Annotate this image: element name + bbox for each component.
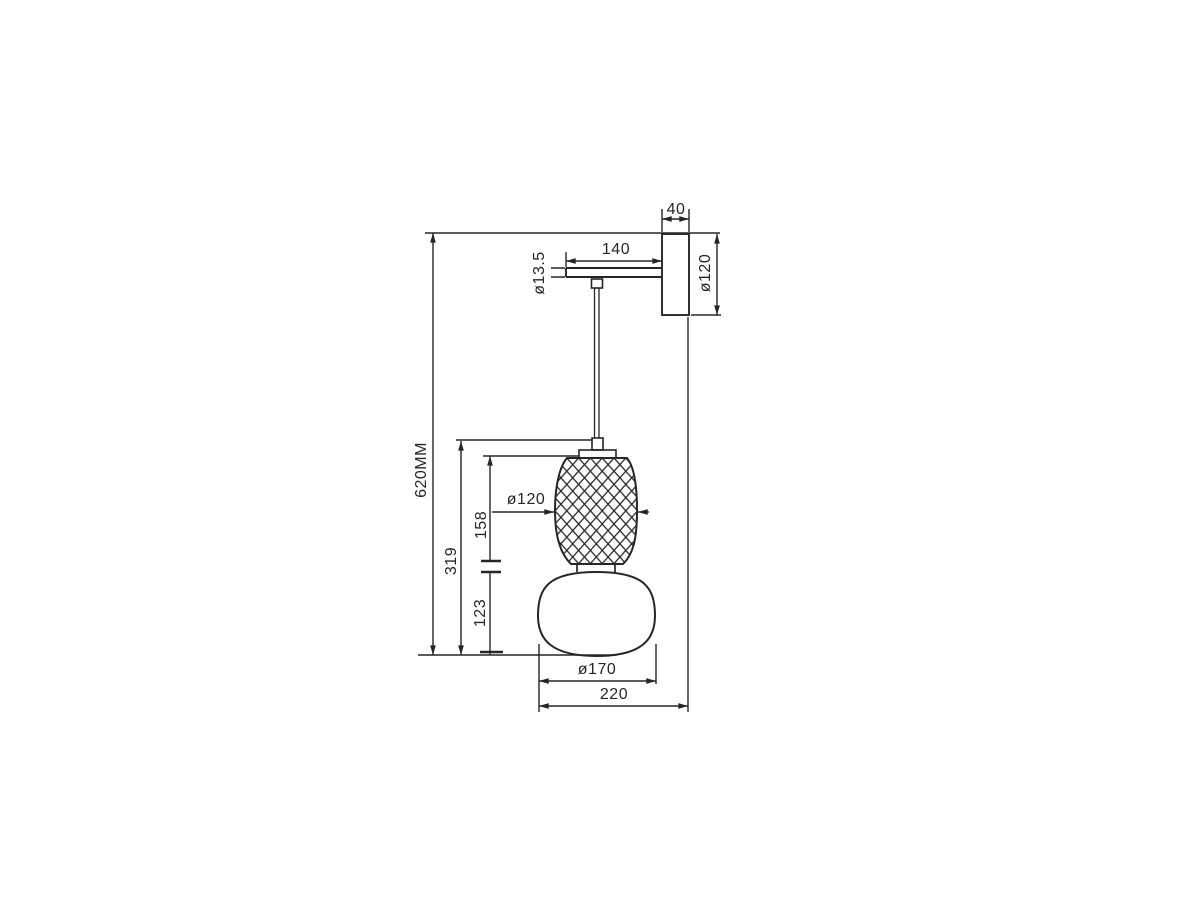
dim-label-stem-diameter: ø13.5 [532,251,548,294]
ext-lines-13-5 [551,268,565,277]
wall-plate [662,234,689,315]
mounting-arm [566,268,662,277]
cord-connector [592,279,603,288]
dim-label-bottom-shade-diameter: ø170 [578,662,616,678]
dim-label-overall-projection: 220 [600,687,628,703]
ext-lines-170 [539,644,656,712]
top-shade-lattice [555,458,637,564]
lamp-fixture [538,234,689,656]
dim-break-ticks [481,561,501,572]
dim-label-hanging-height: 319 [444,547,460,575]
dim-label-overall-height: 620MM [414,442,430,498]
lamp-drawing-linework [0,0,1200,900]
dim-label-bracket-depth: 40 [667,202,686,218]
dim-label-top-shade-height: 158 [474,511,490,539]
dim-label-backplate-size: ø120 [698,254,714,292]
technical-drawing-canvas: 40 140 ø13.5 ø120 620MM 319 158 ø120 123… [0,0,1200,900]
bottom-shade [538,572,655,656]
shade-neck [577,564,615,572]
shade-cap [579,450,616,458]
lamp-stem [592,438,603,450]
dim-label-arm-length: 140 [602,242,630,258]
suspension-cord [595,288,600,438]
dim-label-bottom-shade-height: 123 [473,599,489,627]
dim-label-top-shade-diameter: ø120 [507,492,545,508]
